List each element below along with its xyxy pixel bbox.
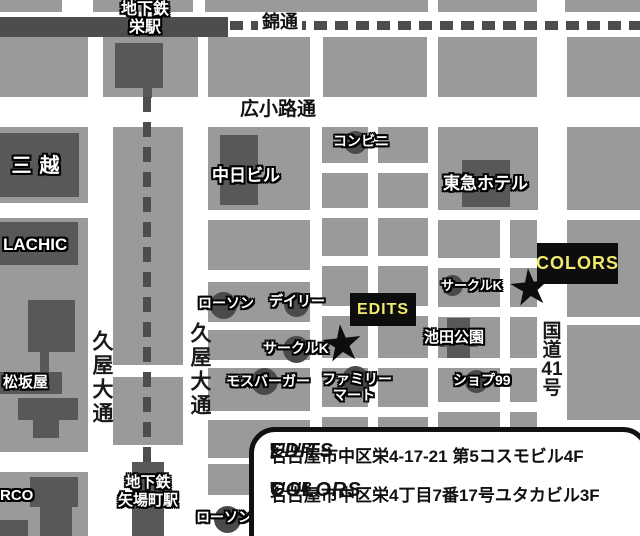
- circle-k-east-label: サークルK: [441, 279, 502, 293]
- family-mart-label: ファミリー マート: [322, 371, 386, 403]
- parco-building: [0, 520, 28, 536]
- city-block: [510, 220, 537, 258]
- city-block: [567, 37, 640, 97]
- city-block: [378, 173, 428, 208]
- route-41-char: 道: [542, 341, 561, 360]
- chunichi-building-label: 中日ビル: [212, 167, 280, 186]
- city-block: [438, 0, 537, 12]
- city-block: [567, 127, 640, 210]
- route-41-label: 国 道 41 号: [538, 322, 566, 398]
- lawson-north-label: ローソン: [198, 296, 254, 311]
- city-block: [567, 325, 640, 420]
- city-block: [0, 37, 88, 97]
- mitsukoshi-label: 三越: [0, 155, 79, 177]
- edits-venue-box: EDITS: [350, 293, 416, 326]
- city-block: [438, 37, 537, 97]
- route-41-char: 号: [542, 379, 561, 398]
- access-map: 地下鉄 栄駅 錦通 広小路通 久屋大通 久屋大通 国 道 41 号 地下鉄 矢場…: [0, 0, 640, 536]
- mos-burger-label: モスバーガー: [226, 374, 310, 389]
- shop99-label: ショプ99: [453, 373, 511, 388]
- ikeda-park-label: 池田公園: [424, 330, 484, 347]
- city-block: [0, 0, 62, 12]
- hirokoji-dori-label: 広小路通: [240, 100, 316, 121]
- yabacho-station-line1: 地下鉄: [125, 474, 170, 491]
- matsuzakaya-building: [18, 398, 78, 420]
- city-block: [565, 0, 640, 12]
- circle-k-west-label: サークルK: [263, 341, 329, 356]
- colors-venue-label: COLORS: [536, 253, 619, 274]
- sakae-station-building: [115, 43, 163, 88]
- parco-label: RCO: [0, 488, 33, 505]
- edits-venue-label: EDITS: [357, 301, 409, 319]
- yabacho-station-label: 地下鉄 矢場町駅: [100, 474, 196, 510]
- sakae-station-line2: 栄駅: [129, 19, 161, 36]
- sakae-station-label: 地下鉄 栄駅: [95, 1, 195, 37]
- city-block: [208, 464, 250, 495]
- route-41-char: 41: [541, 360, 562, 379]
- city-block: [378, 218, 428, 256]
- family-mart-line2: マート: [333, 387, 375, 403]
- city-block: [510, 317, 537, 358]
- konbini-label: コンビニ: [333, 134, 389, 149]
- city-block: [205, 0, 428, 12]
- parco-building: [40, 507, 72, 536]
- city-block: [510, 368, 537, 402]
- hisaya-odori-east-label: 久屋大通: [184, 322, 214, 418]
- family-mart-line1: ファミリー: [322, 371, 392, 387]
- yabacho-station-line2: 矢場町駅: [118, 492, 178, 509]
- colors-venue-box: COLORS: [537, 243, 618, 284]
- matsuzakaya-building: [33, 420, 59, 438]
- club-edits-name: EDITS: [270, 440, 334, 463]
- city-block: [322, 173, 368, 208]
- lawson-south-label: ローソン: [196, 510, 252, 525]
- city-block: [322, 218, 368, 256]
- city-block: [208, 220, 310, 270]
- sakae-station-line1: 地下鉄: [121, 1, 169, 18]
- subway-line-dashed: [143, 97, 151, 465]
- matsuzakaya-building: [40, 352, 49, 374]
- club-colors-name: COLORS: [270, 479, 362, 502]
- nishiki-dori-label: 錦通: [258, 13, 302, 33]
- tokyu-hotel-label: 東急ホテル: [443, 175, 528, 194]
- matsuzakaya-building: [28, 300, 75, 352]
- city-block: [208, 37, 310, 97]
- city-block: [323, 37, 427, 97]
- daily-label: デイリー: [269, 294, 325, 309]
- hisaya-odori-west-label: 久屋大通: [86, 330, 116, 426]
- city-block: [438, 220, 500, 258]
- route-41-char: 国: [542, 322, 561, 341]
- parco-building: [30, 477, 78, 507]
- lachic-label: LACHIC: [3, 236, 67, 255]
- matsuzakaya-label: 松坂屋: [3, 375, 48, 392]
- address-info-box: ■ CLUB EDITS 名古屋市中区栄4-17-21 第5コスモビル4F ■ …: [249, 427, 640, 536]
